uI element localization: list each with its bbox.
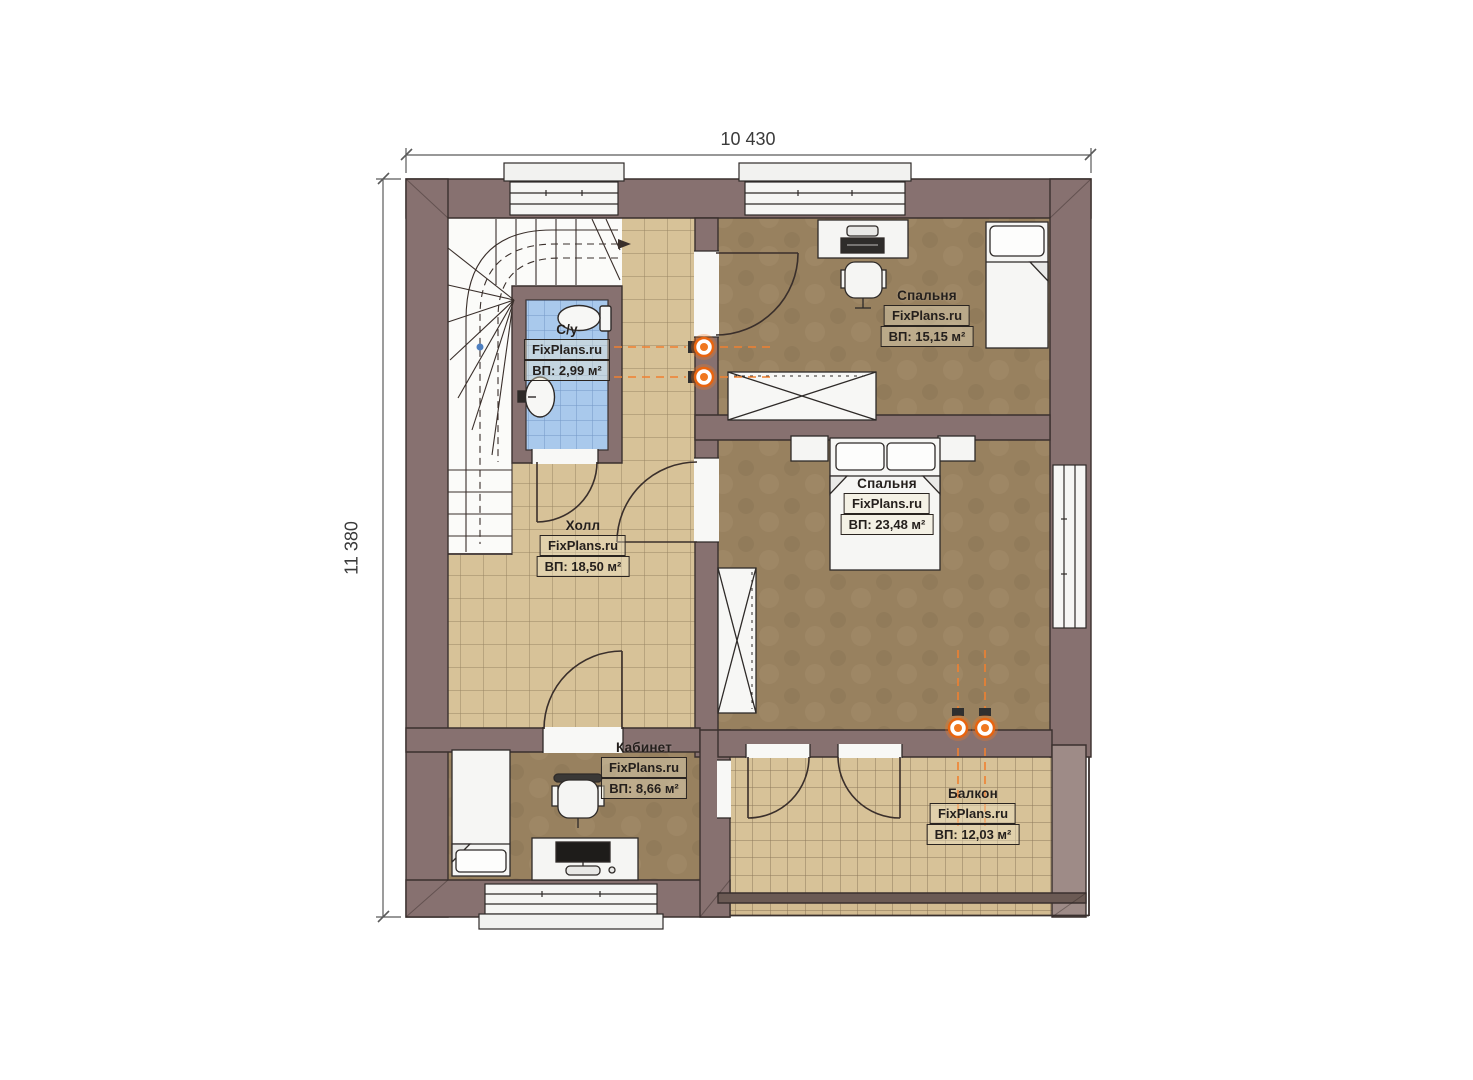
- room-area: ВП: 15,15 м²: [881, 326, 974, 347]
- room-label-bathroom: С/у FixPlans.ru ВП: 2,99 м²: [524, 322, 610, 381]
- dimension-height-label: 11 380: [342, 521, 363, 575]
- room-label-balcony: Балкон FixPlans.ru ВП: 12,03 м²: [927, 786, 1020, 845]
- watermark: FixPlans.ru: [524, 339, 610, 360]
- nightstand-right: [938, 436, 975, 461]
- wall-balcony-bottom: [718, 893, 1086, 903]
- single-bed: [986, 222, 1048, 348]
- wall-balcony-right: [1052, 745, 1086, 917]
- room-label-bedroom-main: Спальня FixPlans.ru ВП: 23,48 м²: [841, 476, 934, 535]
- door-opening-balcony-1: [746, 744, 810, 758]
- room-name: Кабинет: [616, 740, 672, 755]
- room-area: ВП: 8,66 м²: [601, 778, 687, 799]
- room-area: ВП: 2,99 м²: [524, 360, 610, 381]
- room-name: С/у: [556, 322, 578, 337]
- door-opening-bedroom-main: [694, 458, 719, 542]
- computer-desk: [532, 838, 638, 880]
- room-area: ВП: 12,03 м²: [927, 824, 1020, 845]
- watermark: FixPlans.ru: [844, 493, 930, 514]
- room-name: Спальня: [857, 476, 917, 491]
- room-name: Спальня: [897, 288, 957, 303]
- wall-office-right: [700, 730, 730, 917]
- window-right: [1053, 465, 1086, 628]
- nightstand-left: [791, 436, 828, 461]
- watermark: FixPlans.ru: [930, 803, 1016, 824]
- watermark: FixPlans.ru: [540, 535, 626, 556]
- wardrobe-tall: [718, 568, 756, 713]
- window-top-left: [504, 163, 624, 215]
- single-bed-office: [452, 750, 510, 876]
- wall-left: [406, 179, 448, 917]
- watermark: FixPlans.ru: [884, 305, 970, 326]
- floor-plan-page: 10 430 11 380 С/у FixPlans.ru ВП: 2,99 м…: [0, 0, 1473, 1080]
- door-opening-balcony-2: [838, 744, 902, 758]
- room-name: Балкон: [948, 786, 998, 801]
- dimension-width-label: 10 430: [720, 129, 775, 150]
- desk: [818, 220, 908, 258]
- window-top-right: [739, 163, 911, 215]
- door-opening-passage: [717, 760, 731, 818]
- watermark: FixPlans.ru: [601, 757, 687, 778]
- room-name: Холл: [566, 518, 601, 533]
- room-label-office: Кабинет FixPlans.ru ВП: 8,66 м²: [601, 740, 687, 799]
- window-bottom: [479, 884, 663, 929]
- room-label-bedroom-top: Спальня FixPlans.ru ВП: 15,15 м²: [881, 288, 974, 347]
- door-opening-bedroom-top: [694, 251, 719, 337]
- door-opening-bathroom: [532, 449, 598, 464]
- wardrobe: [728, 372, 876, 420]
- floor-plan-drawing: [0, 0, 1473, 1080]
- room-label-hall: Холл FixPlans.ru ВП: 18,50 м²: [537, 518, 630, 577]
- room-area: ВП: 23,48 м²: [841, 514, 934, 535]
- room-area: ВП: 18,50 м²: [537, 556, 630, 577]
